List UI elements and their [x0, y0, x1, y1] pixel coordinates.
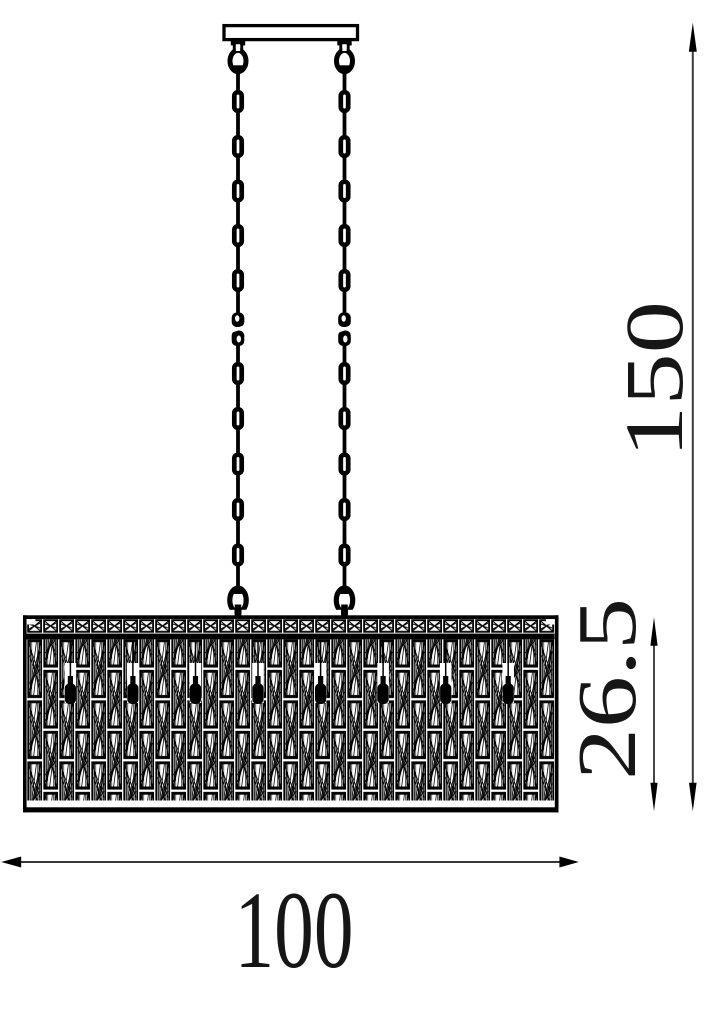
svg-text:100: 100 [235, 868, 354, 991]
svg-text:26.5: 26.5 [562, 598, 654, 780]
svg-text:150: 150 [609, 301, 700, 458]
